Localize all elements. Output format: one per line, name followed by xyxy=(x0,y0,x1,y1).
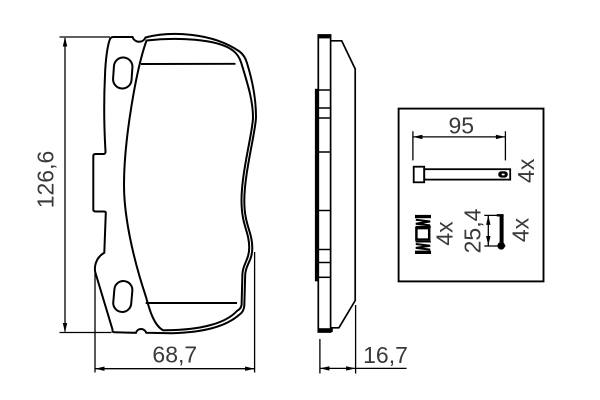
svg-text:25,4: 25,4 xyxy=(460,208,486,253)
svg-text:126,6: 126,6 xyxy=(33,151,59,209)
svg-text:68,7: 68,7 xyxy=(152,342,197,368)
svg-text:4x: 4x xyxy=(508,217,534,242)
svg-text:95: 95 xyxy=(449,113,475,139)
svg-text:4x: 4x xyxy=(432,221,458,246)
svg-text:16,7: 16,7 xyxy=(363,342,408,368)
svg-text:4x: 4x xyxy=(513,158,539,183)
